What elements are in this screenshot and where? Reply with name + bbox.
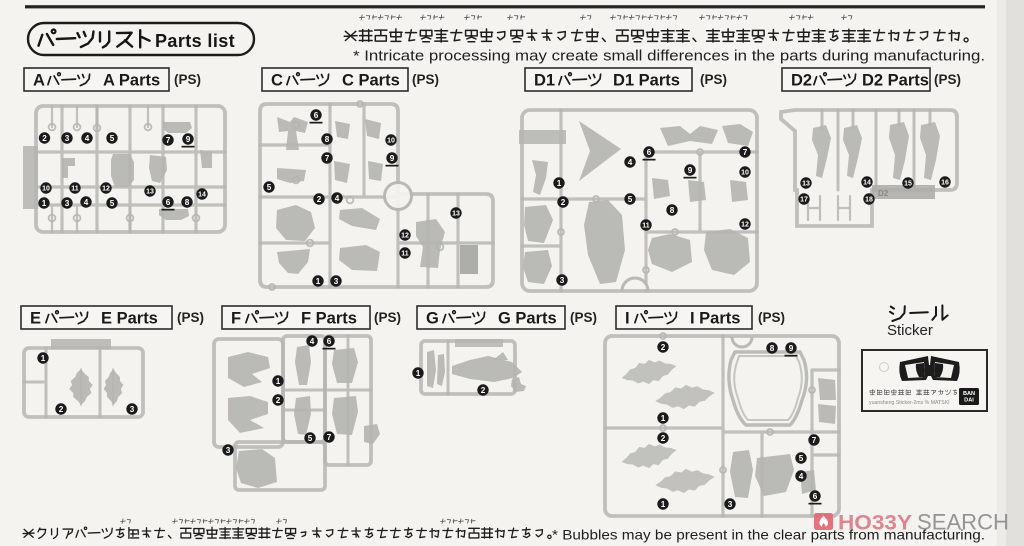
svg-text:Sticker: Sticker xyxy=(887,322,933,339)
svg-text:D2 Parts: D2 Parts xyxy=(862,72,929,90)
svg-text:(PS): (PS) xyxy=(174,72,201,87)
svg-text:13: 13 xyxy=(146,189,154,196)
svg-text:15: 15 xyxy=(904,181,912,188)
svg-text:11: 11 xyxy=(642,223,650,230)
svg-text:SEARCH: SEARCH xyxy=(917,510,1009,535)
svg-text:DAI: DAI xyxy=(964,398,974,404)
svg-text:4: 4 xyxy=(84,198,89,207)
svg-text:(PS): (PS) xyxy=(570,310,597,325)
svg-text:4: 4 xyxy=(335,194,340,203)
svg-text:3: 3 xyxy=(130,405,135,414)
svg-text:4: 4 xyxy=(310,337,315,346)
svg-text:4: 4 xyxy=(85,134,90,143)
svg-text:6: 6 xyxy=(166,198,171,207)
svg-text:9: 9 xyxy=(688,166,693,175)
svg-text:18: 18 xyxy=(865,197,873,204)
svg-text:12: 12 xyxy=(102,186,110,193)
svg-text:* Intricate processing may cre: * Intricate processing may create small … xyxy=(353,48,985,65)
svg-text:5: 5 xyxy=(308,434,313,443)
svg-text:14: 14 xyxy=(198,192,206,199)
svg-text:1: 1 xyxy=(661,414,666,423)
svg-text:8: 8 xyxy=(325,135,330,144)
svg-text:7: 7 xyxy=(166,136,171,145)
svg-text:12: 12 xyxy=(401,233,409,240)
svg-text:yuansheng Sticker-2ms % MATSKI: yuansheng Sticker-2ms % MATSKI xyxy=(869,400,950,406)
svg-text:C: C xyxy=(271,72,283,90)
svg-text:E: E xyxy=(30,310,41,328)
svg-text:3: 3 xyxy=(334,277,339,286)
svg-text:G Parts: G Parts xyxy=(498,310,557,328)
svg-text:11: 11 xyxy=(401,251,409,258)
svg-text:(PS): (PS) xyxy=(700,72,727,87)
svg-text:(PS): (PS) xyxy=(934,72,961,87)
svg-text:2: 2 xyxy=(276,396,281,405)
svg-text:6: 6 xyxy=(813,492,818,501)
svg-text:7: 7 xyxy=(743,148,748,157)
svg-text:3: 3 xyxy=(560,276,565,285)
svg-text:9: 9 xyxy=(390,154,395,163)
svg-text:3: 3 xyxy=(65,199,70,208)
svg-text:7: 7 xyxy=(327,433,332,442)
svg-text:12: 12 xyxy=(741,222,749,229)
svg-text:13: 13 xyxy=(802,181,810,188)
svg-text:2: 2 xyxy=(561,198,566,207)
svg-text:HO33Y: HO33Y xyxy=(838,511,912,535)
svg-text:1: 1 xyxy=(41,354,46,363)
svg-text:C Parts: C Parts xyxy=(342,72,400,90)
svg-text:E Parts: E Parts xyxy=(101,310,158,328)
svg-text:(PS): (PS) xyxy=(758,310,785,325)
svg-text:6: 6 xyxy=(327,337,332,346)
svg-text:A: A xyxy=(33,72,45,90)
svg-text:10: 10 xyxy=(42,186,50,193)
svg-text:8: 8 xyxy=(770,344,775,353)
svg-text:5: 5 xyxy=(110,199,115,208)
svg-text:16: 16 xyxy=(941,180,949,187)
svg-text:D2: D2 xyxy=(791,72,812,90)
svg-text:1: 1 xyxy=(276,377,281,386)
svg-text:1: 1 xyxy=(416,369,421,378)
svg-text:7: 7 xyxy=(325,154,330,163)
svg-text:10: 10 xyxy=(741,170,749,177)
svg-text:13: 13 xyxy=(452,211,460,218)
svg-text:2: 2 xyxy=(481,386,486,395)
svg-text:3: 3 xyxy=(226,446,231,455)
svg-text:1: 1 xyxy=(661,500,666,509)
svg-text:F Parts: F Parts xyxy=(301,310,357,328)
svg-text:2: 2 xyxy=(661,434,666,443)
svg-text:(PS): (PS) xyxy=(412,72,439,87)
svg-text:1: 1 xyxy=(316,277,321,286)
svg-text:9: 9 xyxy=(789,344,794,353)
svg-text:A Parts: A Parts xyxy=(103,72,160,90)
svg-text:G: G xyxy=(426,310,439,328)
svg-text:17: 17 xyxy=(800,197,808,204)
svg-text:2: 2 xyxy=(661,343,666,352)
svg-text:5: 5 xyxy=(799,454,804,463)
svg-text:11: 11 xyxy=(71,186,79,193)
svg-text:BAN: BAN xyxy=(963,391,975,397)
svg-text:(PS): (PS) xyxy=(177,310,204,325)
svg-text:8: 8 xyxy=(185,198,190,207)
svg-text:2: 2 xyxy=(59,405,64,414)
svg-text:(PS): (PS) xyxy=(374,310,401,325)
svg-text:6: 6 xyxy=(647,148,652,157)
svg-text:8: 8 xyxy=(670,206,675,215)
svg-text:4: 4 xyxy=(799,472,804,481)
svg-text:6: 6 xyxy=(314,111,319,120)
svg-text:D1: D1 xyxy=(534,72,555,90)
svg-text:4: 4 xyxy=(628,158,633,167)
svg-text:14: 14 xyxy=(863,180,871,187)
svg-text:1: 1 xyxy=(42,199,47,208)
svg-text:I: I xyxy=(625,310,630,328)
svg-text:D1 Parts: D1 Parts xyxy=(613,72,680,90)
svg-text:I Parts: I Parts xyxy=(690,310,740,328)
svg-text:3: 3 xyxy=(728,500,733,509)
svg-text:5: 5 xyxy=(628,195,633,204)
svg-text:D2: D2 xyxy=(878,189,889,198)
svg-text:2: 2 xyxy=(317,195,322,204)
svg-text:7: 7 xyxy=(812,436,817,445)
svg-text:9: 9 xyxy=(186,135,191,144)
svg-text:Parts list: Parts list xyxy=(155,31,235,51)
svg-text:F: F xyxy=(231,310,241,328)
svg-text:10: 10 xyxy=(387,138,395,145)
svg-text:1: 1 xyxy=(557,179,562,188)
svg-text:5: 5 xyxy=(110,134,115,143)
svg-text:3: 3 xyxy=(65,134,70,143)
svg-text:5: 5 xyxy=(267,183,272,192)
svg-text:2: 2 xyxy=(42,134,47,143)
